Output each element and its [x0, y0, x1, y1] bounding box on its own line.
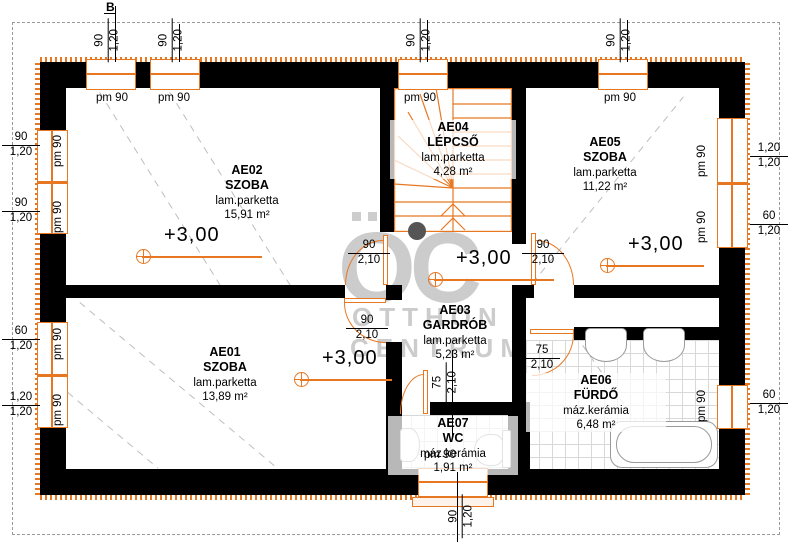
level-mark-ae02: +3,00 — [140, 224, 220, 254]
room-label-ae07: AE07 WC máz.kerámia 1,91 m² — [388, 416, 518, 475]
dim-window-left-1: 901,20 — [2, 131, 40, 160]
dim-window-left-3: 601,20 — [2, 325, 40, 354]
dim-window-left-2: 901,20 — [2, 197, 40, 226]
interior-wall-ae02-ae01 — [66, 285, 345, 298]
dim-window-top-4: 901,20 — [606, 18, 635, 62]
dim-window-top-1: 901,20 — [94, 18, 123, 62]
window-top-2 — [150, 59, 200, 90]
watermark-logo-dot — [352, 212, 361, 221]
level-mark-ae05: +3,00 — [604, 233, 684, 263]
section-mark-b: B — [106, 0, 115, 14]
insulation-hatch-bottom — [40, 495, 745, 500]
window-top-3 — [398, 59, 448, 90]
dim-window-right-3: 601,20 — [750, 389, 788, 418]
sill-label: pm 90 — [696, 145, 708, 177]
watermark-logo-dot — [368, 212, 377, 221]
sill-label: pm 90 — [696, 211, 708, 243]
room-label-ae01: AE01 SZOBA lam.parketta 13,89 m² — [155, 345, 295, 404]
sill-label: pm 90 — [158, 92, 190, 104]
window-right-upper — [717, 118, 748, 248]
bathtub-inner — [616, 426, 712, 463]
dim-door-ae05: 902,10 — [522, 239, 564, 268]
window-right-lower — [717, 385, 748, 429]
room-label-ae04: AE04 LÉPCSŐ lam.parketta 4,28 m² — [390, 120, 516, 179]
dim-window-right-1: 1,201,20 — [750, 142, 788, 171]
window-top-4 — [598, 59, 648, 90]
washbasin-left — [585, 328, 627, 362]
dim-door-wc: 752,10 — [432, 362, 461, 402]
interior-wall-gardrob-wc — [430, 402, 508, 415]
sill-label: pm 90 — [52, 135, 64, 167]
room-label-ae03: AE03 GARDRÓB lam.parketta 5,23 m² — [390, 303, 520, 362]
dim-window-top-3: 901,20 — [406, 18, 435, 62]
dim-window-top-2: 901,20 — [158, 18, 187, 62]
dim-window-left-4: 1,201,20 — [2, 391, 40, 420]
dim-window-bottom: 901,20 — [448, 494, 477, 538]
floor-plan: OC OTTHON CENTRUM — [0, 0, 800, 547]
dim-door-ae02: 902,10 — [348, 239, 390, 268]
sill-label: pm 90 — [404, 92, 436, 104]
window-top-1 — [86, 59, 136, 90]
sill-label: pm 90 — [424, 449, 456, 461]
sill-label: pm 90 — [96, 92, 128, 104]
room-label-ae02: AE02 SZOBA lam.parketta 15,91 m² — [177, 163, 317, 222]
washbasin-right — [643, 328, 685, 362]
dim-window-right-2: 601,20 — [750, 210, 788, 239]
exterior-wall-left — [40, 62, 66, 495]
interior-wall-ae05-bottom-left — [512, 285, 534, 298]
level-mark-corridor: +3,00 — [432, 247, 512, 277]
sill-label: pm 90 — [52, 201, 64, 233]
interior-wall-corridor-left-upper — [386, 285, 402, 300]
level-mark-ae01: +3,00 — [298, 347, 378, 377]
dim-door-bathroom: 752,10 — [524, 344, 560, 373]
dim-door-ae01: 902,10 — [346, 314, 388, 343]
sill-label: pm 90 — [52, 394, 64, 426]
sill-label: pm 90 — [52, 328, 64, 360]
room-label-ae05: AE05 SZOBA lam.parketta 11,22 m² — [535, 135, 675, 194]
sill-label: pm 90 — [604, 92, 636, 104]
interior-wall-ae05-bottom — [574, 285, 720, 298]
room-label-ae06: AE06 FÜRDŐ máz.kerámia 6,48 m² — [526, 373, 666, 432]
sill-label: pm 90 — [696, 390, 708, 422]
stair-newel-post — [408, 222, 426, 240]
